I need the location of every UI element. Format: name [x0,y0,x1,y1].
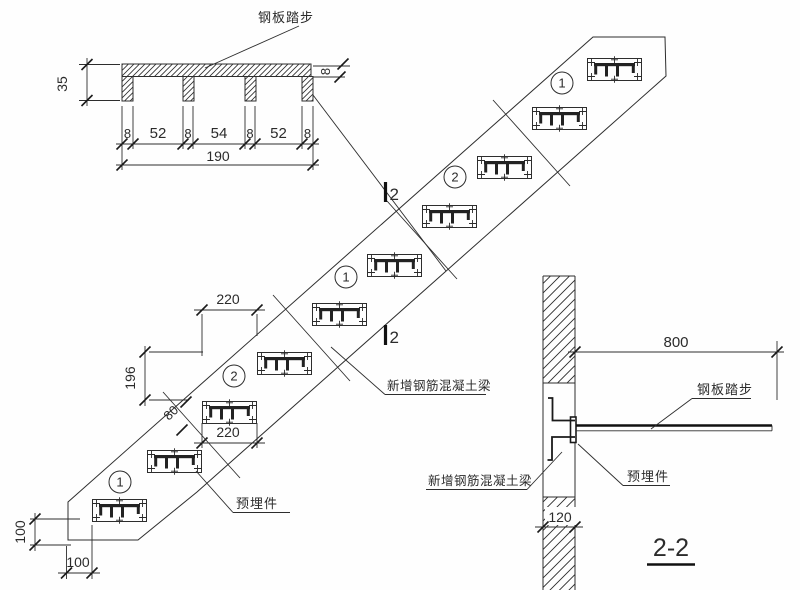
svg-text:120: 120 [548,509,572,525]
svg-text:钢板踏步: 钢板踏步 [697,382,753,397]
tread-plate [533,105,587,131]
svg-text:52: 52 [150,125,167,142]
detail-tread-label: 钢板踏步 [258,10,314,25]
svg-text:100: 100 [12,520,28,544]
svg-text:35: 35 [54,76,70,92]
tread-plate [258,350,312,376]
dim-run-bottom-220: 220 [194,423,265,449]
bay-bubble-2: 2 [223,365,245,387]
section-embed-label: 预埋件 [578,444,670,486]
tread-plate [148,448,202,474]
section-cut-mark-bottom: 2 [386,325,399,347]
channel-leg [302,77,313,102]
svg-text:800: 800 [663,334,688,351]
svg-text:190: 190 [206,148,230,164]
stair-detail-drawing: 钢板踏步 35 8 [0,0,800,590]
bay-bubble-3: 1 [335,266,357,288]
tread-plate-section [576,426,772,431]
tread-plate [368,252,422,278]
tread-plate [588,56,642,82]
svg-text:220: 220 [216,291,240,307]
svg-text:196: 196 [122,366,138,390]
dim-end-height-100: 100 [12,513,80,551]
section-2-2: 800 钢板踏步 预埋件 新增钢筋混凝土梁 120 2 [426,276,784,590]
svg-text:2: 2 [230,369,237,384]
detail-reference-line [313,95,446,271]
section-tread-label: 钢板踏步 [651,382,753,429]
svg-text:80: 80 [160,402,181,423]
svg-text:2: 2 [390,328,399,347]
svg-text:8: 8 [184,126,191,141]
detail-tread-leader [205,26,299,68]
svg-text:54: 54 [211,125,228,142]
svg-text:预埋件: 预埋件 [236,496,278,511]
drawing-canvas: 钢板踏步 35 8 [0,0,800,590]
dim-height-35: 35 [54,58,120,106]
tread-plate [478,154,532,180]
bay-bubble-4: 2 [444,166,466,188]
section-beam-label: 新增钢筋混凝土梁 [426,452,562,490]
bay-bubble-1: 1 [109,471,131,493]
tread-plate [313,301,367,327]
svg-text:1: 1 [558,76,565,91]
dim-run-top-220: 220 [194,291,265,356]
dim-end-width-100: 100 [58,525,100,579]
svg-text:2: 2 [390,185,399,204]
svg-text:新增钢筋混凝土梁: 新增钢筋混凝土梁 [428,473,532,488]
dim-total-190: 190 [116,148,319,171]
svg-text:8: 8 [124,126,131,141]
svg-text:1: 1 [342,270,349,285]
svg-text:220: 220 [216,424,240,440]
wall-hatch-upper [543,276,575,383]
plan-beam-label: 新增钢筋混凝土梁 [331,347,491,395]
svg-text:52: 52 [270,125,287,142]
tread-plate [93,497,147,523]
svg-text:预埋件: 预埋件 [627,469,669,484]
svg-text:8: 8 [318,68,333,75]
svg-text:8: 8 [246,126,253,141]
section-title: 2-2 [647,534,695,565]
dim-thickness-8: 8 [313,59,350,83]
svg-text:8: 8 [304,126,311,141]
dim-beam-80: 80 [160,397,191,436]
tread-plate [423,203,477,229]
channel-leg [183,77,194,102]
channel-leg [122,77,133,102]
svg-text:100: 100 [66,554,90,570]
bay-bubble-5: 1 [551,72,573,94]
tread-plate [203,399,257,425]
channel-plate [122,64,311,77]
svg-text:2-2: 2-2 [653,534,689,562]
svg-text:新增钢筋混凝土梁: 新增钢筋混凝土梁 [387,378,491,393]
plan-embed-label: 预埋件 [196,471,290,513]
channel-leg [245,77,256,102]
tread-section-detail: 钢板踏步 35 8 [54,10,350,171]
svg-text:2: 2 [451,170,458,185]
svg-text:1: 1 [116,475,123,490]
